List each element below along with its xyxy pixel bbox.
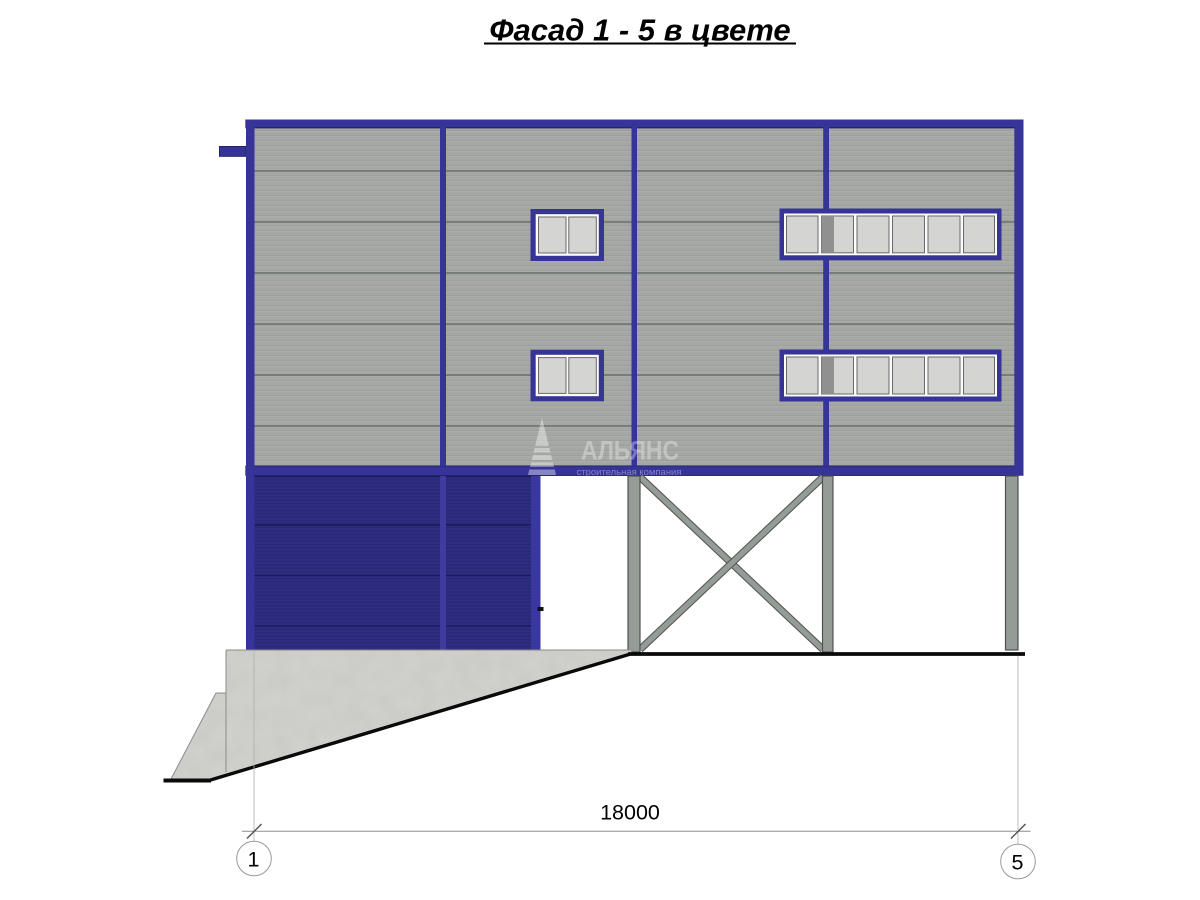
svg-text:АЛЬЯНС: АЛЬЯНС	[581, 436, 679, 466]
svg-text:Фасад 1 - 5 в цвете: Фасад 1 - 5 в цвете	[489, 13, 790, 48]
svg-text:1: 1	[248, 848, 260, 872]
svg-text:18000: 18000	[600, 801, 660, 825]
svg-text:строительная компания: строительная компания	[577, 467, 682, 477]
svg-text:5: 5	[1012, 851, 1024, 875]
